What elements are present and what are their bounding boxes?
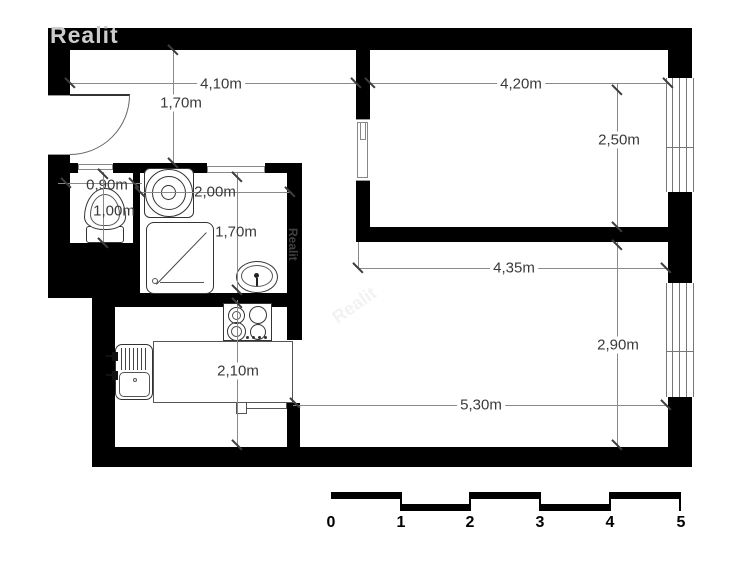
scale-bar-end-tick bbox=[679, 492, 681, 511]
wall-middle bbox=[356, 227, 680, 242]
entrance-opening-edge bbox=[48, 95, 70, 96]
dim-connector bbox=[358, 242, 359, 268]
bedroom-opening-edge bbox=[356, 119, 370, 120]
scale-bar-segment-top bbox=[331, 492, 401, 499]
kitchen-sink-hole bbox=[133, 378, 137, 382]
window-bedroom-transom bbox=[666, 147, 694, 148]
watermark-tile: Realit bbox=[286, 228, 300, 261]
window-bedroom-mullion bbox=[672, 78, 673, 192]
scale-bar-segment-top bbox=[470, 492, 540, 499]
stove-knob bbox=[264, 336, 267, 339]
stove-burner bbox=[249, 306, 267, 324]
scale-label-1: 1 bbox=[397, 514, 406, 532]
bedroom-door-nib bbox=[360, 122, 366, 140]
scale-bar-connector bbox=[539, 492, 541, 511]
washbasin-faucet-stem bbox=[256, 278, 258, 286]
window-living bbox=[666, 283, 694, 397]
wall-left-upper bbox=[48, 50, 70, 95]
scale-bar-connector bbox=[400, 492, 402, 511]
scale-label-4: 4 bbox=[606, 514, 615, 532]
watermark-tile: Realit bbox=[328, 283, 380, 328]
window-living-transom bbox=[666, 351, 694, 352]
scale-label-2: 2 bbox=[466, 514, 475, 532]
wall-wc-bottom bbox=[65, 243, 140, 298]
dim-bedroom-depth: 2,50m bbox=[595, 132, 643, 149]
window-living-mullion bbox=[686, 283, 687, 397]
dim-living-width-top: 4,35m bbox=[490, 260, 538, 277]
wall-top bbox=[48, 28, 692, 50]
scale-bar-segment-bottom bbox=[540, 504, 610, 511]
window-living-mullion bbox=[672, 283, 673, 397]
wall-bath-bottom bbox=[115, 293, 302, 307]
kitchen-sink-drainer bbox=[121, 348, 148, 370]
scale-bar-segment-top bbox=[610, 492, 680, 499]
dim-wc-depth: 1,00m bbox=[90, 203, 138, 220]
dim-bathroom-width: 2,00m bbox=[191, 184, 239, 201]
dim-bathroom-depth: 1,70m bbox=[212, 224, 260, 241]
dim-living-depth: 2,90m bbox=[594, 337, 642, 354]
scale-label-5: 5 bbox=[677, 514, 686, 532]
dim-hall-width: 4,10m bbox=[197, 76, 245, 93]
dim-line bbox=[617, 83, 618, 227]
dim-bedroom-width: 4,20m bbox=[497, 76, 545, 93]
entrance-opening-edge bbox=[48, 154, 70, 155]
scale-bar-connector bbox=[609, 492, 611, 511]
scale-label-0: 0 bbox=[327, 514, 336, 532]
dim-living-width-bottom: 5,30m bbox=[457, 397, 505, 414]
dim-kitchen-depth: 2,10m bbox=[214, 363, 262, 380]
kitchen-door-leaf bbox=[243, 402, 287, 409]
shower-drain bbox=[152, 278, 158, 284]
scale-bar-connector bbox=[469, 492, 471, 511]
scale-bar-segment-bottom bbox=[401, 504, 470, 511]
window-living-mullion bbox=[679, 283, 680, 397]
watermark-logo: Realit bbox=[50, 22, 119, 49]
stove-knob bbox=[252, 336, 255, 339]
window-bedroom-mullion bbox=[686, 78, 687, 192]
window-bedroom bbox=[666, 78, 694, 192]
wall-hallbath-a bbox=[65, 163, 78, 173]
kitchen-sink-tap-lever bbox=[106, 355, 113, 357]
stove-knob bbox=[258, 336, 261, 339]
bathroom-door-leaf bbox=[207, 166, 265, 173]
bedroom-opening-edge bbox=[356, 180, 370, 181]
floor-plan: 4,10m 1,70m 4,20m 2,50m 0,90m 1,00m 2,00… bbox=[0, 0, 749, 562]
wc-door-leaf bbox=[78, 164, 113, 170]
wall-kitchen-stub bbox=[287, 403, 300, 447]
entrance-door-swing-arc bbox=[10, 35, 130, 155]
kitchen-sink-bowl bbox=[119, 372, 150, 397]
wall-right-seg1 bbox=[668, 50, 692, 78]
stove-knob bbox=[246, 336, 249, 339]
wall-bottom bbox=[92, 447, 692, 467]
scale-label-3: 3 bbox=[536, 514, 545, 532]
dim-hall-depth: 1,70m bbox=[157, 95, 205, 112]
wall-right-seg3 bbox=[668, 397, 692, 447]
kitchen-sink-tap-lever bbox=[106, 374, 113, 376]
window-bedroom-mullion bbox=[679, 78, 680, 192]
shower-edge-line bbox=[160, 282, 204, 283]
